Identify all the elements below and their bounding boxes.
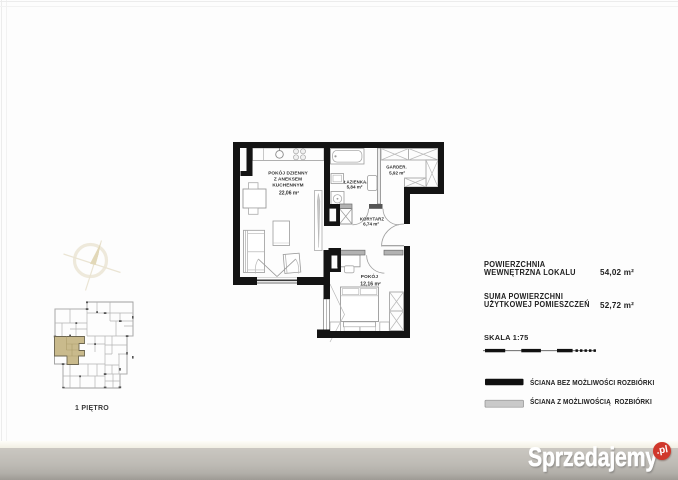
svg-text:ŁAZIENKA: ŁAZIENKA	[344, 179, 367, 184]
svg-text:12,16 m²: 12,16 m²	[360, 281, 381, 287]
svg-text:POKÓJ: POKÓJ	[361, 272, 379, 279]
svg-text:6,74 m²: 6,74 m²	[363, 221, 379, 226]
svg-text:Z ANEKSEM: Z ANEKSEM	[274, 177, 302, 182]
svg-text:GARDER.: GARDER.	[386, 164, 407, 169]
svg-text:POKÓJ DZIENNY: POKÓJ DZIENNY	[268, 169, 308, 176]
svg-text:KUCHENNYM: KUCHENNYM	[272, 183, 303, 188]
svg-text:5,92 m²: 5,92 m²	[389, 171, 405, 176]
svg-text:5,84 m²: 5,84 m²	[347, 185, 363, 190]
svg-text:22,06 m²: 22,06 m²	[279, 190, 299, 196]
